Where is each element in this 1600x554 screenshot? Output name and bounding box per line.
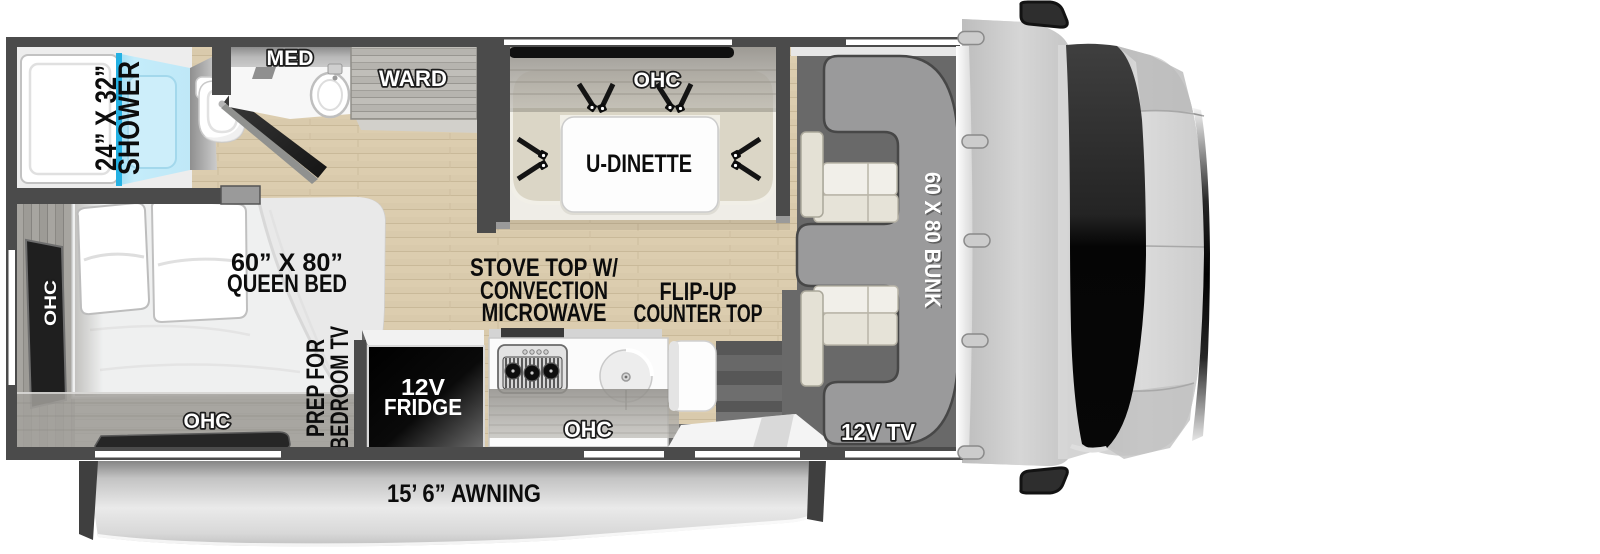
svg-text:U-DINETTE: U-DINETTE <box>586 150 692 178</box>
svg-text:QUEEN BED: QUEEN BED <box>227 270 347 298</box>
svg-text:12V TV: 12V TV <box>841 419 916 445</box>
svg-text:BEDROOM TV: BEDROOM TV <box>326 326 354 450</box>
svg-text:OHC: OHC <box>634 69 681 92</box>
svg-text:COUNTER TOP: COUNTER TOP <box>634 300 763 328</box>
svg-text:OHC: OHC <box>184 410 231 433</box>
svg-text:MICROWAVE: MICROWAVE <box>482 299 607 327</box>
svg-text:60 X 80 BUNK: 60 X 80 BUNK <box>920 172 945 308</box>
svg-text:FRIDGE: FRIDGE <box>384 394 462 420</box>
svg-text:SHOWER: SHOWER <box>113 61 146 175</box>
svg-text:OHC: OHC <box>41 280 60 326</box>
svg-text:OHC: OHC <box>564 417 612 442</box>
svg-text:15’ 6” AWNING: 15’ 6” AWNING <box>387 480 541 508</box>
svg-text:MED: MED <box>267 47 314 70</box>
svg-text:WARD: WARD <box>379 66 447 91</box>
